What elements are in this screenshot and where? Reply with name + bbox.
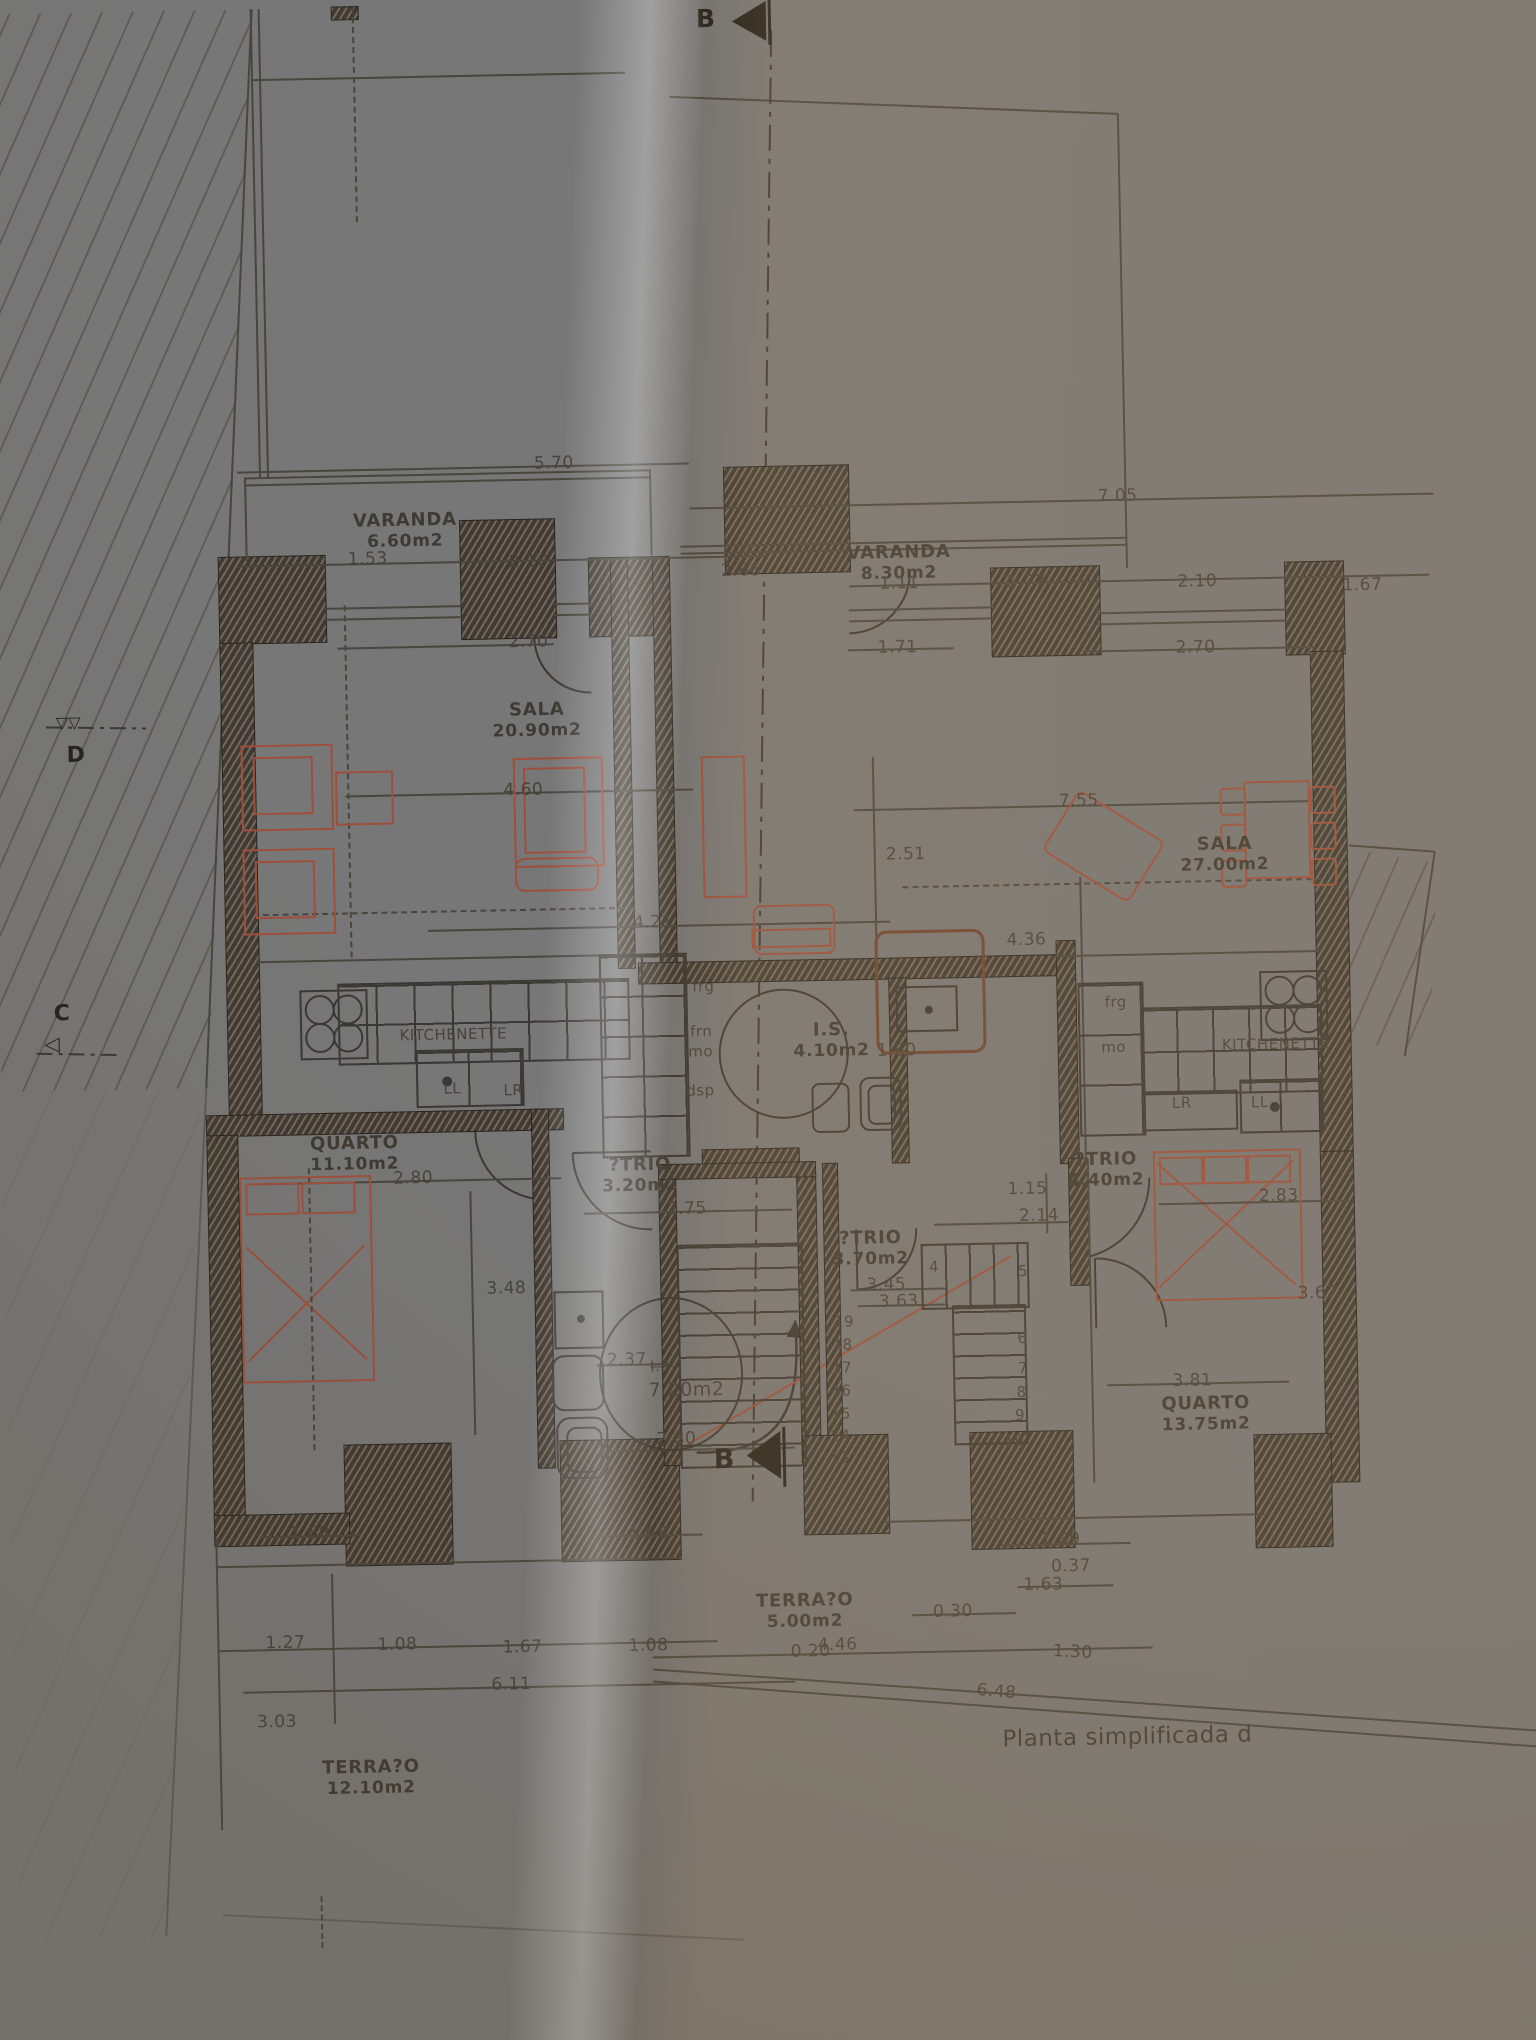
dimension-label: 1.53 bbox=[348, 549, 388, 570]
dimension-label: 2.14 bbox=[1019, 1205, 1059, 1226]
fixture-label: I.S. bbox=[650, 1357, 676, 1376]
stair-flight bbox=[921, 1242, 1030, 1310]
furniture bbox=[753, 904, 836, 956]
section-b-top-arrow-icon bbox=[732, 1, 767, 42]
section-c-triangle-icon: ◁ bbox=[44, 1031, 60, 1055]
photographed-floor-plan: VARANDA6.60m2VARANDA8.30m2SALA20.90m2SAL… bbox=[0, 0, 1536, 2040]
room-name-label: I.S. bbox=[813, 1019, 850, 1041]
dimension-label: 1.67 bbox=[1342, 575, 1382, 596]
fixture-label: KITCHENETTE bbox=[399, 1024, 507, 1044]
room-name-label: TERRA?O bbox=[756, 1589, 854, 1612]
stair-number-label: 13 bbox=[830, 1448, 850, 1466]
dimension-label: 2.70 bbox=[508, 631, 548, 652]
fixture-label: mo bbox=[688, 1042, 713, 1060]
kitchen-counter bbox=[599, 953, 691, 1159]
dimension-label: 1.27 bbox=[265, 1632, 305, 1653]
floor-plan-drawing: VARANDA6.60m2VARANDA8.30m2SALA20.90m2SAL… bbox=[0, 0, 1536, 2040]
stair-number-label: 10 bbox=[1004, 1431, 1024, 1449]
furniture bbox=[245, 1182, 300, 1215]
room-area-label: 4.10m2 bbox=[793, 1040, 870, 1062]
fixture-label: mo bbox=[1101, 1038, 1126, 1056]
stair-number-label: 19 bbox=[834, 1312, 854, 1330]
wall bbox=[219, 556, 327, 644]
room-area-label: 4.40m2 bbox=[1068, 1170, 1145, 1192]
sanitary-fixture bbox=[811, 1082, 850, 1133]
dimension-label: 1.60 bbox=[877, 1040, 917, 1061]
dimension-label: 7.05 bbox=[1097, 486, 1137, 507]
room-area-label: 13.75m2 bbox=[1162, 1413, 1251, 1435]
stair-number-label: 4 bbox=[929, 1258, 939, 1276]
fixture-label: LL bbox=[1251, 1093, 1269, 1111]
furniture bbox=[301, 1181, 356, 1214]
stair-number-label: 15 bbox=[831, 1404, 851, 1422]
wall bbox=[332, 7, 358, 20]
dimension-label: 1.89 bbox=[1040, 1529, 1080, 1550]
room-name-label: VARANDA bbox=[846, 541, 950, 564]
fixture-label: 7.20m2 bbox=[648, 1378, 724, 1402]
dimension-label: 5.70 bbox=[534, 453, 574, 474]
dimension-label: 3.63 bbox=[879, 1291, 919, 1312]
dimension-label: 2.66 bbox=[721, 560, 761, 581]
sanitary-fixture bbox=[566, 1426, 603, 1473]
dimension-label: 2.83 bbox=[1259, 1185, 1299, 1206]
dimension-label: 1.08 bbox=[628, 1635, 668, 1656]
dimension-label: 2.75 bbox=[667, 1198, 707, 1219]
wall bbox=[724, 465, 850, 573]
dimension-label: 4.60 bbox=[503, 780, 543, 801]
stair-number-label: 18 bbox=[832, 1335, 852, 1353]
dimension-label: 1.11 bbox=[879, 573, 919, 594]
dimension-label: 1.67 bbox=[502, 1637, 542, 1658]
stair-number-label: 9 bbox=[1015, 1406, 1025, 1424]
caption-planta-simplificada: Planta simplificada d bbox=[1002, 1721, 1252, 1752]
dimension-label: 3.67 bbox=[1297, 1283, 1337, 1304]
fixture-label: frn bbox=[690, 1022, 713, 1040]
fixture-label: KITCHENETTE bbox=[1222, 1034, 1330, 1054]
dimension-label: 1.68 bbox=[290, 1523, 330, 1544]
stair-number-label: 14 bbox=[830, 1426, 850, 1444]
dimension-label: 1.30 bbox=[1052, 1641, 1093, 1663]
dimension-label: 1.68 bbox=[628, 1523, 668, 1544]
section-marker-b-top: B bbox=[696, 4, 716, 33]
room-area-label: 3.20m2 bbox=[602, 1175, 679, 1197]
room-name-label: TERRA?O bbox=[322, 1756, 420, 1779]
section-marker-c: C bbox=[53, 1001, 70, 1026]
sanitary-fixture bbox=[552, 1354, 605, 1411]
furniture bbox=[253, 756, 314, 815]
room-name-label: ?TRIO bbox=[1074, 1148, 1137, 1170]
dimension-label: 1.77 bbox=[1006, 571, 1046, 592]
room-name-label: VARANDA bbox=[353, 509, 457, 532]
dimension-label: 0.20 bbox=[791, 1641, 831, 1662]
stair-number-label: 7 bbox=[1018, 1359, 1028, 1377]
stair-number-label: 17 bbox=[832, 1358, 852, 1376]
wall bbox=[344, 1443, 452, 1565]
dimension-label: 2.70 bbox=[1175, 637, 1215, 658]
fixture-label: LL bbox=[443, 1079, 461, 1097]
dimension-label: 3.03 bbox=[257, 1712, 297, 1733]
dimension-label: 0.30 bbox=[933, 1601, 973, 1622]
stair-number-label: 6 bbox=[1017, 1329, 1027, 1347]
room-name-label: QUARTO bbox=[310, 1132, 399, 1155]
dimension-label: 2.10 bbox=[1177, 571, 1217, 592]
dimension-label: 3.81 bbox=[1172, 1370, 1212, 1391]
stair-number-label: 8 bbox=[1016, 1383, 1026, 1401]
room-area-label: 3.70m2 bbox=[832, 1248, 909, 1270]
fixture-label: frg bbox=[692, 977, 715, 995]
furniture bbox=[1311, 858, 1338, 887]
dimension-label: 3.48 bbox=[486, 1278, 526, 1299]
room-name-label: ?TRIO bbox=[839, 1227, 902, 1249]
fixture-label: LR bbox=[503, 1081, 523, 1099]
furniture bbox=[1309, 786, 1336, 815]
dimension-label: 4.21 bbox=[633, 912, 673, 933]
section-d-triangles-icon: ▽▽ bbox=[56, 713, 81, 732]
room-area-label: 27.00m2 bbox=[1180, 854, 1269, 876]
room-area-label: 11.10m2 bbox=[310, 1153, 399, 1175]
dimension-label: 2.80 bbox=[393, 1168, 433, 1189]
furniture bbox=[1219, 787, 1246, 816]
dimension-label: 6.48 bbox=[976, 1680, 1017, 1703]
room-name-label: QUARTO bbox=[1161, 1392, 1250, 1415]
furniture bbox=[1310, 822, 1337, 851]
furniture bbox=[701, 755, 748, 898]
dimension-label: 0.37 bbox=[1051, 1556, 1091, 1577]
wall bbox=[1254, 1434, 1332, 1548]
dimension-label: 4.36 bbox=[1006, 929, 1046, 950]
stair-number-label: 16 bbox=[831, 1381, 851, 1399]
dimension-label: 1.15 bbox=[1007, 1178, 1047, 1199]
dimension-label: 2.37 bbox=[607, 1350, 647, 1371]
dimension-label: 2.10 bbox=[509, 551, 549, 572]
section-marker-b-bottom: B bbox=[714, 1444, 735, 1475]
furniture bbox=[335, 771, 394, 826]
sanitary-fixture bbox=[867, 1084, 896, 1125]
section-marker-d: D bbox=[66, 743, 85, 768]
room-name-label: ?TRIO bbox=[608, 1154, 671, 1176]
dimension-label: 2.80 bbox=[656, 1429, 696, 1450]
furniture bbox=[515, 856, 600, 892]
dimension-label: 7.55 bbox=[1059, 790, 1099, 811]
room-area-label: 5.00m2 bbox=[767, 1611, 844, 1633]
dimension-label: 6.11 bbox=[491, 1674, 531, 1695]
room-area-label: 20.90m2 bbox=[493, 720, 582, 742]
room-name-label: SALA bbox=[509, 699, 565, 721]
dimension-label: 1.08 bbox=[377, 1634, 417, 1655]
room-area-label: 12.10m2 bbox=[327, 1777, 416, 1799]
furniture bbox=[1159, 1156, 1204, 1185]
fixture-label: frg bbox=[1104, 993, 1127, 1011]
furniture bbox=[1203, 1155, 1248, 1184]
stair-number-label: 5 bbox=[1018, 1262, 1028, 1280]
wall bbox=[460, 519, 556, 639]
dimension-label: 1.71 bbox=[877, 637, 917, 658]
fixture-label: dsp bbox=[686, 1081, 715, 1100]
sofa-dark bbox=[874, 929, 986, 1055]
furniture bbox=[255, 860, 316, 919]
dimension-label: 1.63 bbox=[1023, 1574, 1063, 1595]
dimension-label: 2.51 bbox=[886, 844, 926, 865]
stair-flight bbox=[952, 1304, 1029, 1445]
room-name-label: SALA bbox=[1197, 833, 1253, 855]
furniture bbox=[1247, 1155, 1292, 1184]
fixture-label: LR bbox=[1172, 1094, 1192, 1112]
section-b-bottom-arrow-icon bbox=[746, 1431, 781, 1480]
